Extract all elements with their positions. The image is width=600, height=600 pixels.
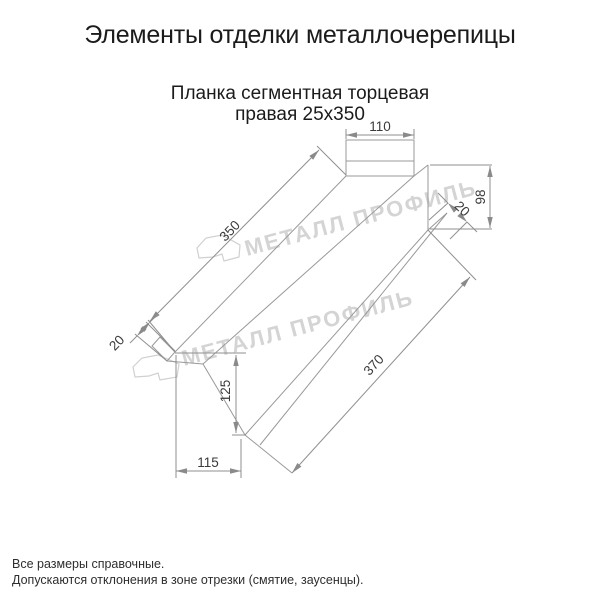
brand-logo-icon	[197, 235, 240, 261]
dim-label-20-left: 20	[106, 332, 127, 353]
watermark-top: МЕТАЛЛ ПРОФИЛЬ	[197, 175, 479, 261]
footer-notes: Все размеры справочные. Допускаются откл…	[12, 557, 364, 588]
dimension-lines	[130, 129, 492, 478]
cap-to-corner-edge	[414, 165, 428, 176]
dim-label-98: 98	[473, 189, 488, 204]
dim-label-125: 125	[218, 380, 233, 403]
drawing-page: Элементы отделки металлочерепицы Планка …	[0, 0, 600, 600]
technical-drawing: МЕТАЛЛ ПРОФИЛЬ МЕТАЛЛ ПРОФИЛЬ	[0, 0, 600, 600]
dim-label-110: 110	[369, 119, 391, 134]
brand-logo-icon	[133, 355, 179, 380]
right-lip-edge	[428, 213, 447, 230]
watermark-text: МЕТАЛЛ ПРОФИЛЬ	[242, 175, 480, 261]
footer-note-2: Допускаются отклонения в зоне отрезки (с…	[12, 573, 364, 589]
top-flange-end-cap	[346, 140, 414, 176]
footer-note-1: Все размеры справочные.	[12, 557, 364, 573]
bottom-cut-edge	[245, 435, 292, 473]
dim-label-370: 370	[361, 352, 387, 379]
dim-label-115: 115	[197, 455, 219, 470]
